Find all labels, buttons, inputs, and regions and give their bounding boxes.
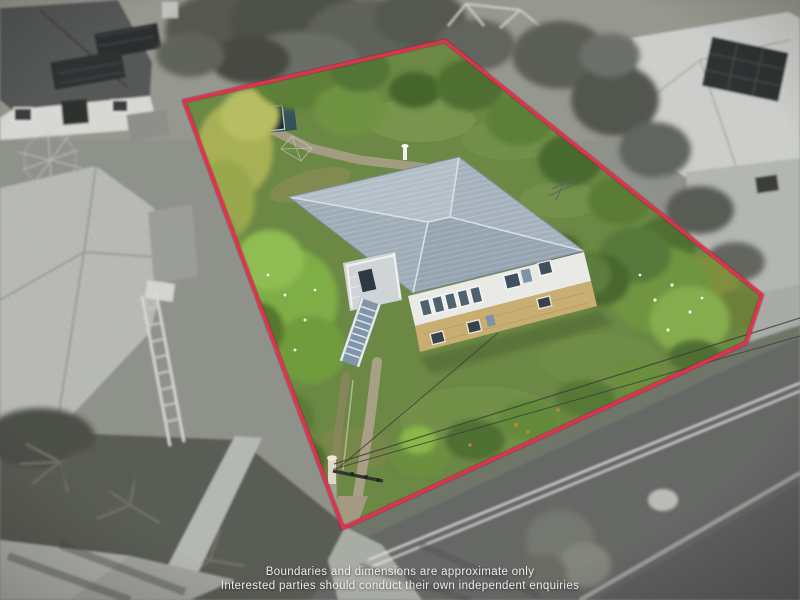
aerial-scene: [0, 0, 800, 600]
disclaimer-text: Boundaries and dimensions are approximat…: [0, 566, 800, 593]
vignette: [0, 0, 800, 600]
disclaimer-line-2: Interested parties should conduct their …: [0, 580, 800, 594]
disclaimer-line-1: Boundaries and dimensions are approximat…: [0, 566, 800, 580]
aerial-property-photo: Boundaries and dimensions are approximat…: [0, 0, 800, 600]
